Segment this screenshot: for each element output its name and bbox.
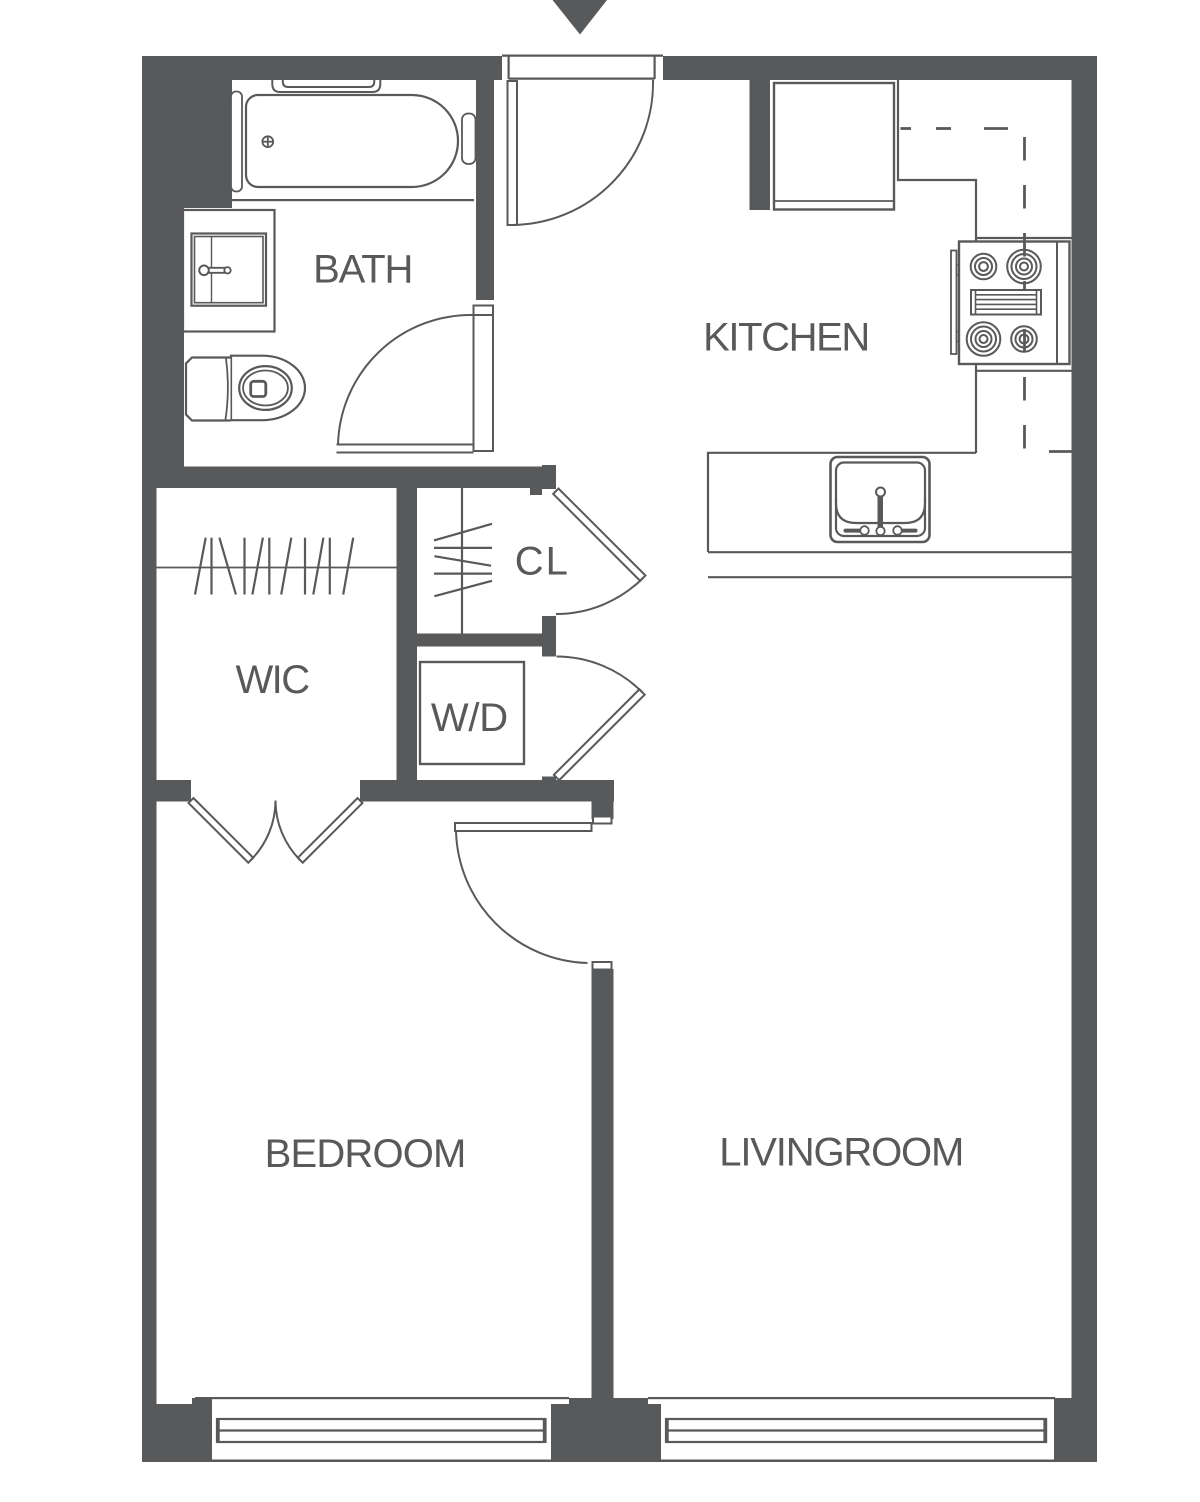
svg-text:W/D: W/D <box>431 696 508 740</box>
svg-text:BATH: BATH <box>313 247 412 291</box>
svg-text:WIC: WIC <box>235 658 309 702</box>
svg-text:LIVINGROOM: LIVINGROOM <box>719 1131 963 1175</box>
svg-text:KITCHEN: KITCHEN <box>703 316 869 360</box>
svg-text:CL: CL <box>515 539 570 583</box>
svg-text:BEDROOM: BEDROOM <box>265 1132 466 1176</box>
